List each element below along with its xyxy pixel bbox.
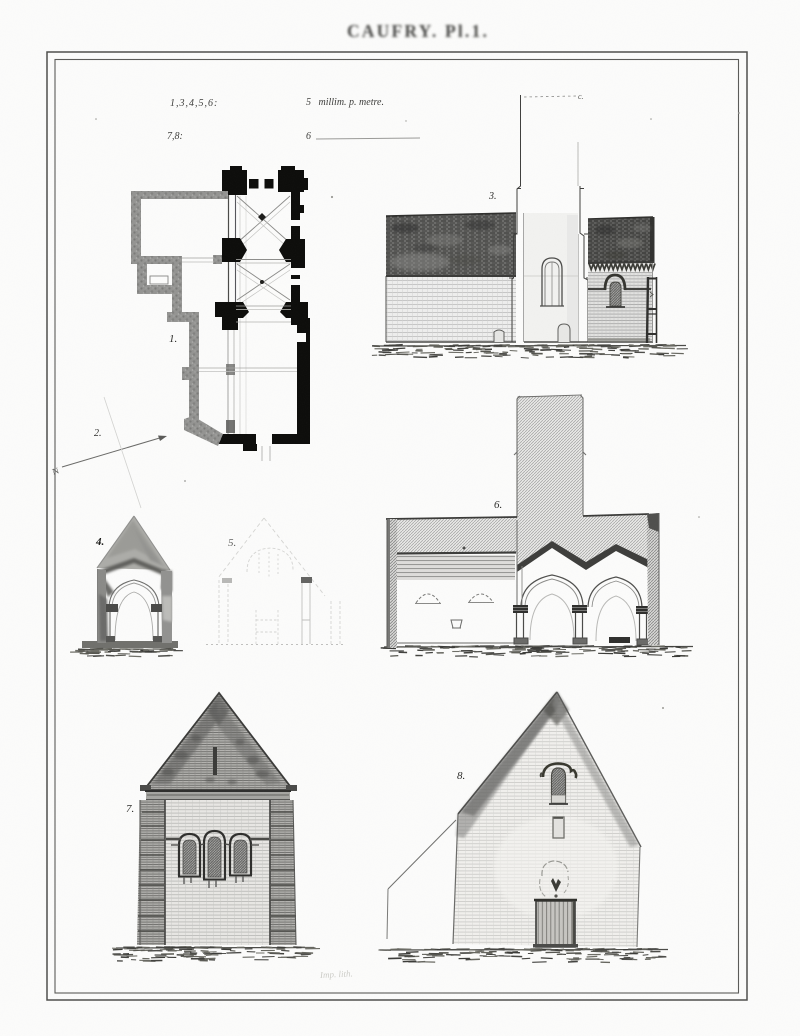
svg-text:Imp. lith.: Imp. lith. <box>319 968 353 980</box>
